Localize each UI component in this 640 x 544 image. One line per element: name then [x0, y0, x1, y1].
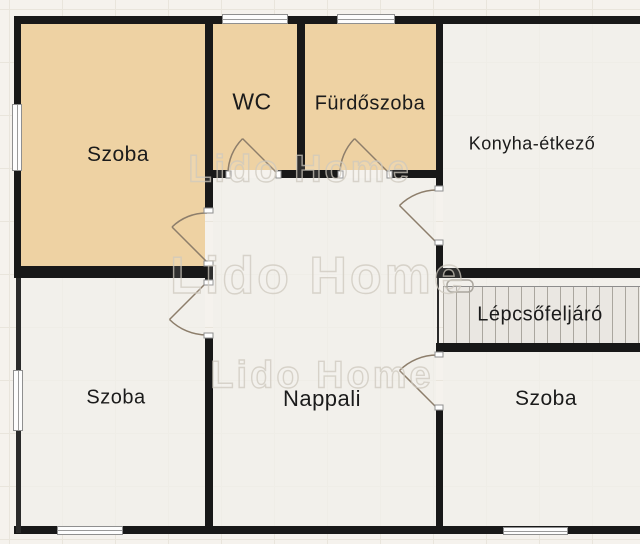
door-frame: [435, 352, 443, 357]
room-label-furdoszoba: Fürdőszoba: [315, 93, 426, 116]
room-label-wc: WC: [232, 89, 271, 116]
door-arc-szoba-bottom-left: [170, 320, 208, 336]
door-frame: [204, 333, 213, 338]
floor-plan: Szoba WC Fürdőszoba Konyha-étkező Szoba …: [0, 0, 640, 544]
watermark-text: Lido Home: [170, 246, 466, 306]
door-panel-konyha: [400, 206, 438, 244]
room-label-szoba-bottom-left: Szoba: [86, 387, 145, 410]
room-label-szoba-bottom-right: Szoba: [515, 387, 577, 411]
door-arc-konyha: [400, 190, 438, 206]
door-frame: [435, 240, 443, 245]
door-arc-szoba-top: [172, 213, 207, 227]
watermark-text: Lido Home: [210, 355, 433, 398]
room-label-szoba-top-left: Szoba: [87, 143, 149, 167]
watermark-text: Lido Home: [188, 149, 411, 192]
door-frame: [435, 186, 443, 191]
door-frame: [204, 208, 213, 213]
room-label-konyha-etkezo: Konyha-étkező: [469, 134, 596, 155]
door-frame: [435, 405, 443, 410]
room-label-lepcsofeljaro: Lépcsőfeljáró: [477, 304, 602, 327]
